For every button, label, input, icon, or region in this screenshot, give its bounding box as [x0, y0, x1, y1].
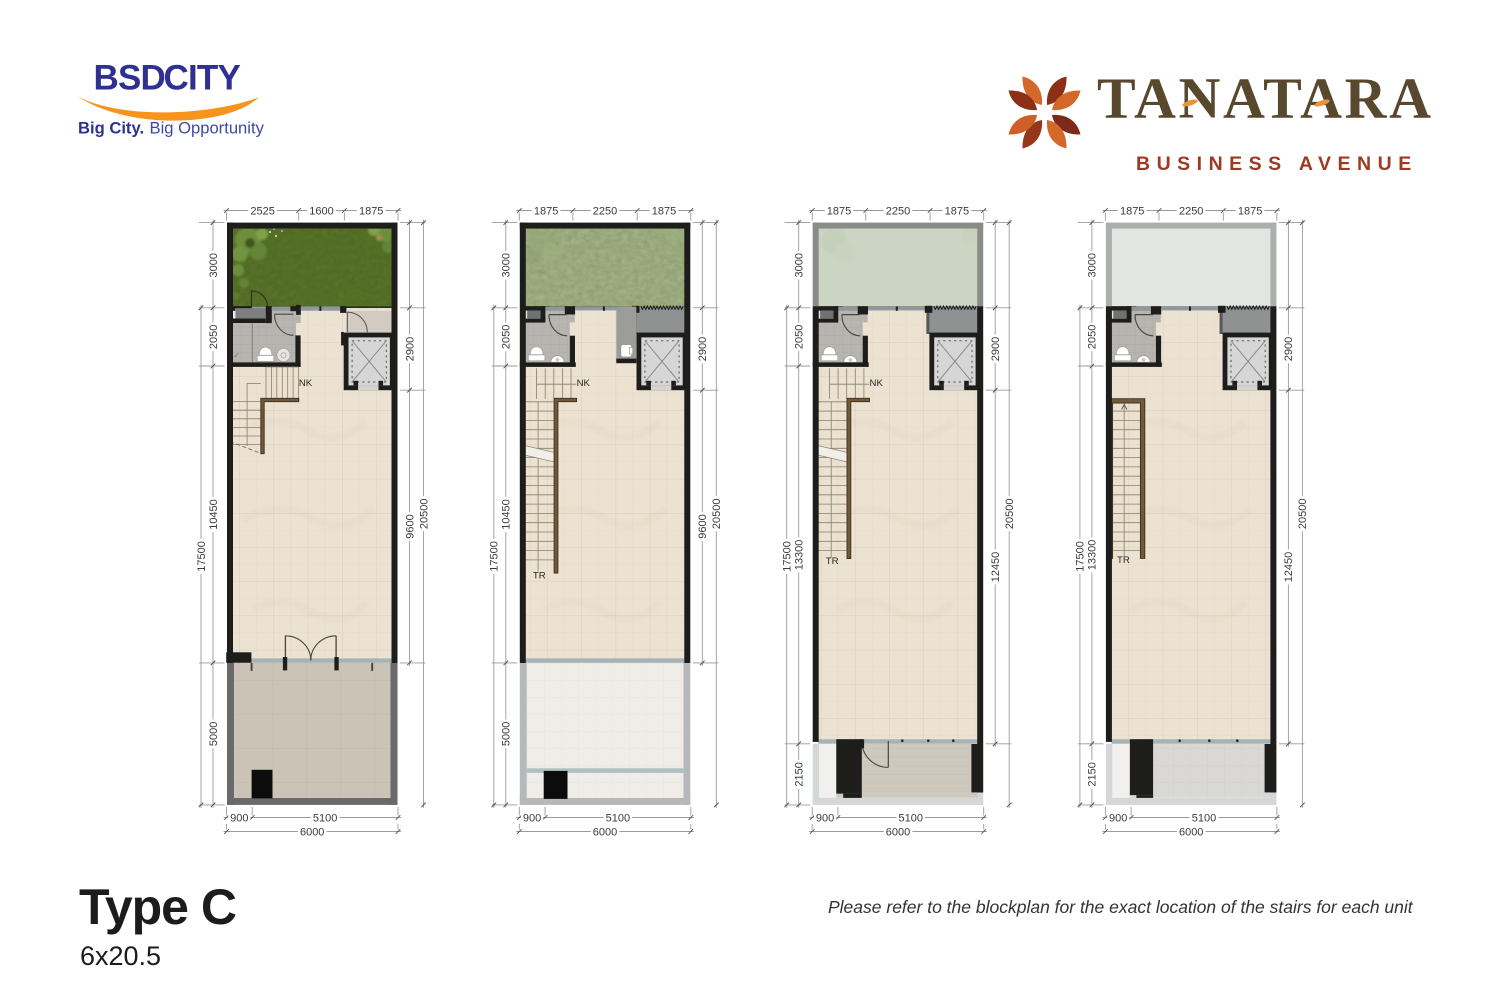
svg-text:17500: 17500 — [1075, 541, 1087, 572]
svg-text:TANATARA: TANATARA — [1097, 66, 1434, 131]
svg-text:5100: 5100 — [606, 812, 630, 824]
svg-text:CITY: CITY — [164, 59, 241, 98]
svg-text:3000: 3000 — [208, 253, 220, 277]
svg-text:2525: 2525 — [250, 205, 274, 217]
svg-text:2900: 2900 — [404, 337, 416, 361]
svg-text:900: 900 — [816, 812, 834, 824]
svg-text:1875: 1875 — [945, 205, 969, 217]
svg-text:6x20.5: 6x20.5 — [80, 941, 161, 971]
svg-text:Big Opportunity: Big Opportunity — [150, 119, 265, 138]
svg-text:20500: 20500 — [418, 499, 430, 530]
svg-text:NK: NK — [577, 378, 591, 389]
svg-text:5000: 5000 — [208, 722, 220, 746]
svg-text:3000: 3000 — [501, 253, 513, 277]
svg-text:2050: 2050 — [1087, 325, 1099, 349]
svg-text:6000: 6000 — [886, 826, 910, 838]
svg-text:2050: 2050 — [501, 325, 513, 349]
svg-text:13300: 13300 — [794, 540, 806, 571]
svg-text:2250: 2250 — [593, 205, 617, 217]
svg-text:9600: 9600 — [404, 514, 416, 538]
svg-text:TR: TR — [533, 571, 546, 582]
svg-text:5100: 5100 — [899, 812, 923, 824]
svg-text:20500: 20500 — [1004, 499, 1016, 530]
svg-text:10450: 10450 — [501, 499, 513, 530]
svg-text:2150: 2150 — [794, 762, 806, 786]
svg-text:10450: 10450 — [208, 499, 220, 530]
svg-text:NK: NK — [870, 378, 884, 389]
svg-text:3000: 3000 — [1087, 253, 1099, 277]
svg-text:17500: 17500 — [489, 541, 501, 572]
svg-text:BSD: BSD — [94, 59, 166, 98]
svg-text:1875: 1875 — [827, 205, 851, 217]
svg-text:3000: 3000 — [794, 253, 806, 277]
svg-text:2050: 2050 — [208, 325, 220, 349]
svg-text:2900: 2900 — [990, 337, 1002, 361]
svg-text:12450: 12450 — [990, 552, 1002, 583]
svg-text:1875: 1875 — [652, 205, 676, 217]
svg-text:5100: 5100 — [1192, 812, 1216, 824]
svg-text:17500: 17500 — [782, 541, 794, 572]
svg-text:TR: TR — [1117, 555, 1130, 566]
svg-text:2150: 2150 — [1087, 762, 1099, 786]
svg-text:Type C: Type C — [79, 879, 236, 935]
svg-text:2250: 2250 — [886, 205, 910, 217]
svg-text:2900: 2900 — [697, 337, 709, 361]
svg-text:20500: 20500 — [711, 499, 723, 530]
svg-text:9600: 9600 — [697, 514, 709, 538]
svg-text:900: 900 — [523, 812, 541, 824]
svg-text:1875: 1875 — [1238, 205, 1262, 217]
svg-text:12450: 12450 — [1283, 552, 1295, 583]
svg-text:TR: TR — [826, 556, 839, 567]
svg-text:NK: NK — [299, 378, 313, 389]
svg-text:1600: 1600 — [309, 205, 333, 217]
svg-text:1875: 1875 — [534, 205, 558, 217]
svg-text:1875: 1875 — [359, 205, 383, 217]
svg-text:BUSINESS AVENUE: BUSINESS AVENUE — [1136, 153, 1418, 175]
svg-text:6000: 6000 — [300, 826, 324, 838]
svg-text:Please refer to the blockplan: Please refer to the blockplan for the ex… — [828, 897, 1414, 917]
svg-text:2050: 2050 — [794, 325, 806, 349]
svg-text:13300: 13300 — [1087, 540, 1099, 571]
svg-text:17500: 17500 — [196, 541, 208, 572]
svg-text:1875: 1875 — [1120, 205, 1144, 217]
svg-text:900: 900 — [230, 812, 248, 824]
svg-text:900: 900 — [1109, 812, 1127, 824]
svg-text:2250: 2250 — [1179, 205, 1203, 217]
svg-text:5100: 5100 — [313, 812, 337, 824]
svg-text:6000: 6000 — [593, 826, 617, 838]
svg-text:6000: 6000 — [1179, 826, 1203, 838]
svg-text:2900: 2900 — [1283, 337, 1295, 361]
svg-text:20500: 20500 — [1297, 499, 1309, 530]
svg-text:Big City.: Big City. — [78, 119, 144, 138]
svg-text:5000: 5000 — [501, 722, 513, 746]
